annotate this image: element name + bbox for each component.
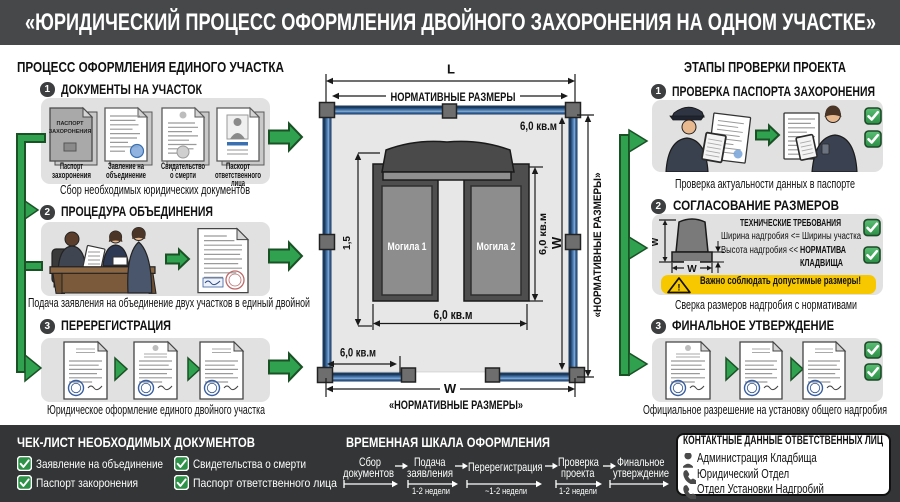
svg-text:«НОРМАТИВНЫЕ РАЗМЕРЫ»: «НОРМАТИВНЫЕ РАЗМЕРЫ» [389,400,523,412]
svg-text:6,0 кв.м: 6,0 кв.м [434,308,473,322]
svg-text:Могила 2: Могила 2 [477,241,516,253]
svg-text:ПАСПОРТ: ПАСПОРТ [57,121,85,127]
svg-text:«НОРМАТИВНЫЕ РАЗМЕРЫ»: «НОРМАТИВНЫЕ РАЗМЕРЫ» [592,173,604,318]
svg-text:!: ! [677,283,680,294]
svg-text:НОРМАТИВНЫЕ РАЗМЕРЫ: НОРМАТИВНЫЕ РАЗМЕРЫ [391,90,516,104]
svg-text:6,0 кв.м: 6,0 кв.м [537,213,549,255]
svg-text:W: W [687,264,697,275]
svg-text:6,0 кв.м: 6,0 кв.м [340,348,376,360]
svg-text:W: W [549,236,564,249]
svg-text:1,5: 1,5 [342,236,353,250]
svg-text:6,0 кв.м: 6,0 кв.м [520,121,557,133]
svg-text:W: W [444,381,457,396]
svg-text:L: L [447,62,455,77]
svg-text:Могила 1: Могила 1 [388,241,427,253]
